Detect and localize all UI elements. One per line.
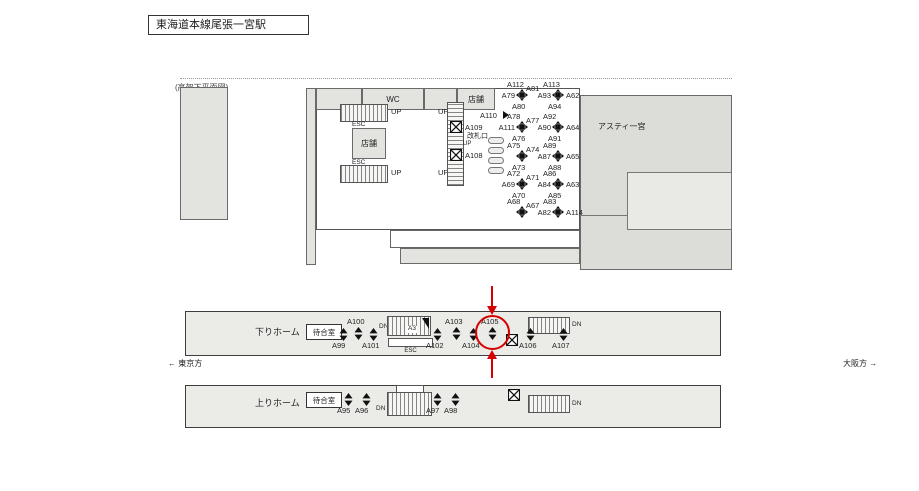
ad-spot-label: A83 [543,197,556,206]
updown-marker-icon [433,328,442,341]
ticket-gate-machine [488,147,504,154]
highlight-circle [475,315,510,350]
updown-marker-icon [354,327,363,340]
ad-spot-label: A68 [507,197,520,206]
ad-pillar-icon [552,206,564,218]
asty-label: アスティ一宮 [598,123,646,131]
spot-a109-label: A109 [465,124,483,132]
stairs-center-column [447,102,464,186]
page-title: 東海道本線尾張一宮駅 [148,15,309,35]
down-platform-label: 下りホーム [255,328,300,337]
ad-spot-label: A80 [512,102,525,111]
lower-concourse-block [400,248,580,264]
ad-pillar-icon [552,150,564,162]
stairs-upper-left [340,104,388,122]
room-shop-mid: 店舗 [352,128,386,159]
ad-spot-label: A106 [519,341,537,350]
up-platform-label: 上りホーム [255,399,300,408]
updown-marker-icon [369,328,378,341]
updown-marker-icon [452,327,461,340]
highlight-arrow-bottom [491,358,493,378]
ad-spot-label: A64 [566,123,579,132]
ad-spot-label: A104 [462,341,480,350]
stair-end-marker-icon [422,318,429,329]
ad-spot-label: A101 [362,341,380,350]
updown-marker-icon [362,393,371,406]
up-label: UP [463,141,471,147]
ad-spot-label: A92 [543,112,556,121]
spot-a108-label: A108 [465,152,483,160]
ad-spot-label: A79 [502,91,515,100]
ad-spot-label: A93 [538,91,551,100]
ad-spot-label: A94 [548,102,561,111]
x-box-icon [450,149,462,161]
direction-tokyo: ← 東京方 [168,360,202,368]
updown-marker-icon [339,328,348,341]
corridor-wall [306,88,316,265]
updown-marker-icon [559,328,568,341]
ad-spot-label: A100 [347,317,365,326]
ad-spot-label: A112 [507,80,524,89]
ad-spot-label: A113 [543,80,560,89]
ad-spot-label: A95 [337,406,350,415]
ad-spot-label: A107 [552,341,570,350]
ad-pillar-icon [552,178,564,190]
ticket-gate-label: 改札口 [467,133,488,140]
ticket-gate-machine [488,157,504,164]
ad-spot-label: A63 [566,180,579,189]
waiting-room: 待合室 [306,324,342,340]
plan-boundary-dotted-line [180,78,732,79]
ad-spot-label: A65 [566,152,579,161]
ad-spot-label: A78 [507,112,520,121]
dn-label: DN [572,322,581,329]
ad-spot-label: A102 [426,341,444,350]
left-building-block [180,87,228,220]
ad-spot-label: A114 [566,208,583,217]
ad-spot-label: A97 [426,406,439,415]
ad-spot-label: A82 [538,208,551,217]
ad-spot-label: A89 [543,141,556,150]
ticket-gate-machine [488,167,504,174]
ad-pillar-icon [552,121,564,133]
station-map: 東海道本線尾張一宮駅 (高架下平面図) WC 店舗 UP ESC 店舗 ESC … [0,0,919,491]
updown-marker-icon [451,393,460,406]
ad-spot-label: A90 [538,123,551,132]
shop-label: 店舗 [468,95,484,104]
ad-spot-label: A72 [507,169,520,178]
updown-marker-icon [344,393,353,406]
dn-label: DN [376,406,385,413]
ad-spot-label: A98 [444,406,457,415]
x-box-icon [450,121,462,133]
ad-spot-label: A62 [566,91,579,100]
esc-label: ESC [404,348,416,354]
up-label: UP [391,108,401,116]
ad-spot-label: A96 [355,406,368,415]
ad-spot-label: A86 [543,169,556,178]
ad-spot-label: A75 [507,141,520,150]
ad-spot-label: A87 [538,152,551,161]
direction-osaka: 大阪方 → [843,360,877,368]
x-box-icon [508,389,520,401]
spot-a110-label: A110 [480,112,497,120]
ad-spot-label: A103 [445,317,463,326]
ad-pillar-icon [552,89,564,101]
highlight-arrow-top [491,286,493,307]
up-platform-stairs-east [528,395,570,413]
lower-concourse-block [390,230,580,248]
asty-inner-block [627,172,732,230]
ad-spot-label: A111 [499,123,515,132]
stairs-lower-left [340,165,388,183]
stair-sign-label: A3 [407,326,417,333]
highlight-arrowhead-down [487,306,497,315]
shop-label: 店舗 [361,139,377,148]
updown-marker-icon [526,328,535,341]
ad-spot-label: A84 [538,180,551,189]
up-label: UP [391,169,401,177]
ticket-gate-machine [488,137,504,144]
ad-spot-label: A99 [332,341,345,350]
dn-label: DN [572,401,581,408]
updown-marker-icon [433,393,442,406]
wc-label: WC [386,95,399,104]
ad-spot-label: A69 [502,180,515,189]
